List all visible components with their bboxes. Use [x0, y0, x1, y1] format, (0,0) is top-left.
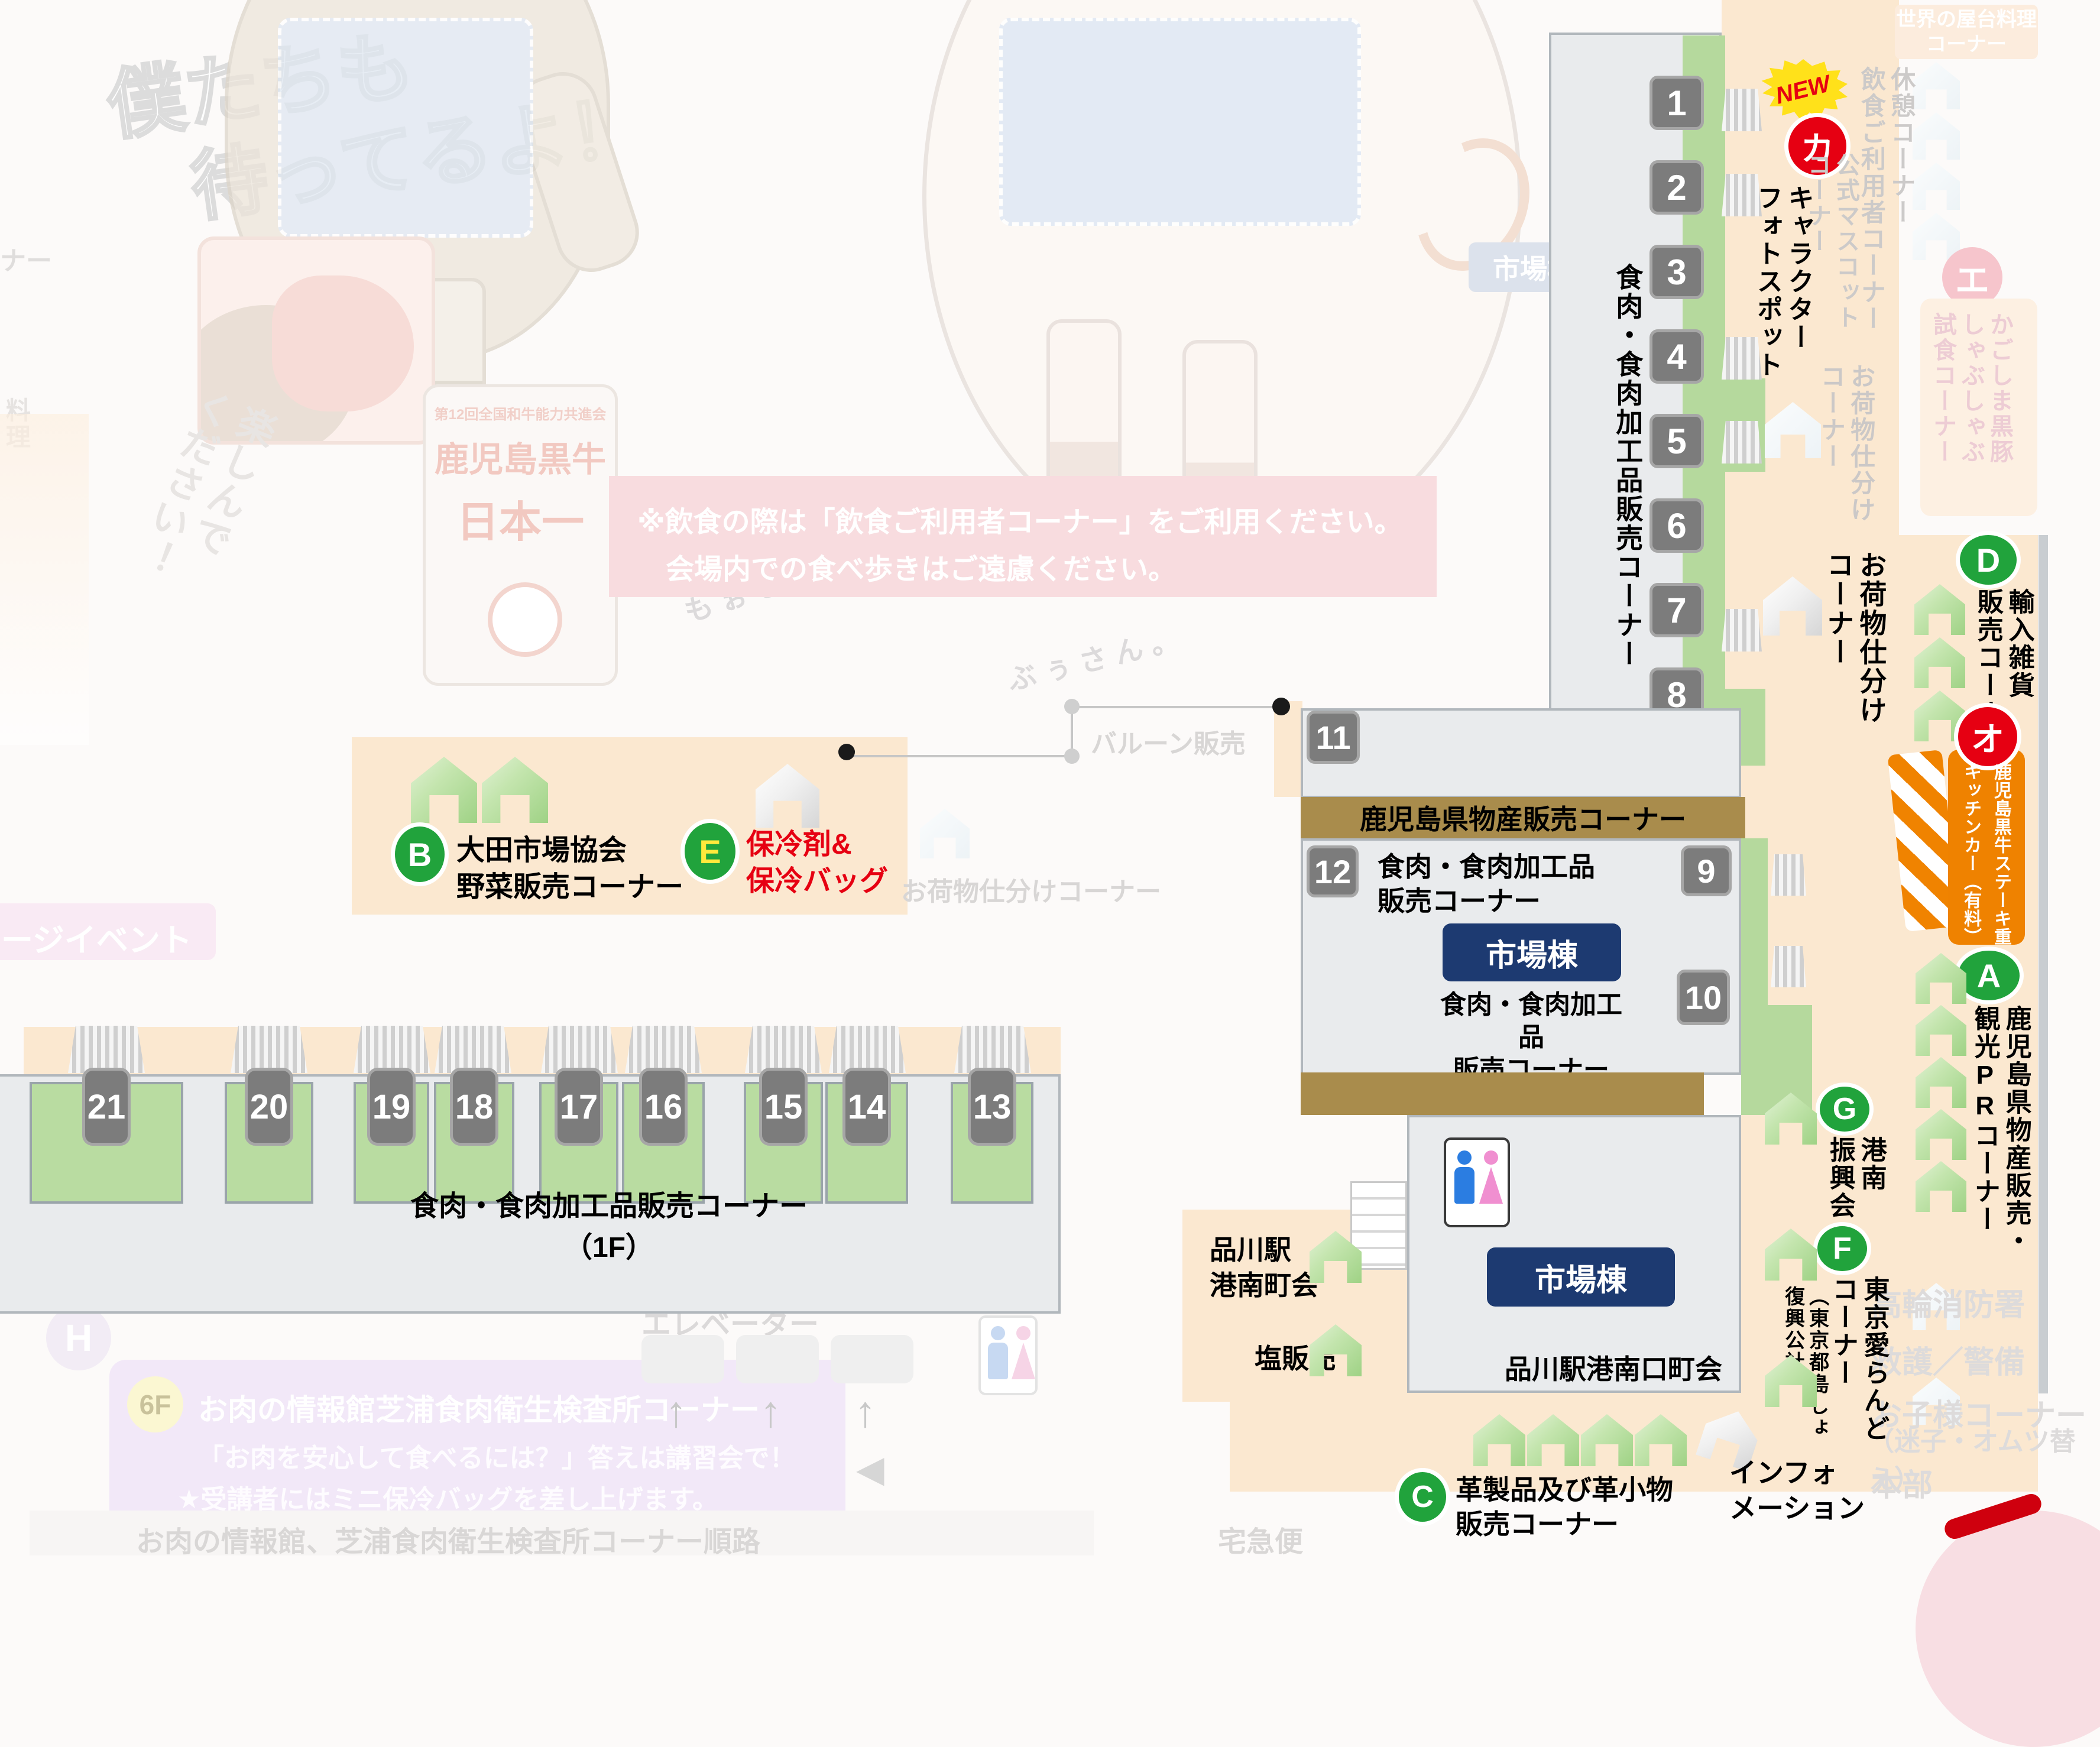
booth-number-4: 4 [1649, 329, 1704, 384]
meat-sales-label-1: 食肉・食肉加工品 販売コーナー [1378, 850, 1595, 918]
striped-booth-icon [745, 1026, 822, 1073]
fire-station-label-faded: 高輪消防署 [1871, 1280, 2025, 1324]
booth-number-5: 5 [1649, 414, 1704, 468]
striped-booth-icon [435, 1026, 511, 1073]
connector-dot [1064, 748, 1080, 764]
faded-tent-icon [920, 809, 970, 858]
striped-booth-icon [354, 1026, 430, 1073]
cow-apron [278, 18, 533, 238]
spot-f-letter: F [1833, 1231, 1852, 1266]
elevator-box [736, 1335, 819, 1383]
new-badge-label: NEW [1773, 70, 1833, 109]
notice-line1: ※飲食の際は「飲食ご利用者コーナー」をご利用ください。 [637, 498, 1403, 540]
booth-number-18: 18 [450, 1068, 498, 1146]
booth-number-12: 12 [1307, 845, 1359, 897]
right-divider-line [2039, 535, 2048, 1393]
spot-g-badge: G [1820, 1087, 1869, 1132]
booth-number-16: 16 [639, 1068, 688, 1146]
booth-number-21: 21 [82, 1068, 131, 1146]
floor6-line1: 「お肉を安心して食べるには？」答えは講習会で！ [198, 1437, 796, 1474]
spot-e-label: 保冷剤& 保冷バッグ [746, 826, 888, 900]
floor6-badge-label: 6F [140, 1389, 171, 1421]
up-arrow-icon: ↑ [665, 1386, 687, 1437]
floor6-badge: 6F [127, 1376, 183, 1432]
notice-line2: 会場内での食べ歩きはご遠慮ください。 [666, 546, 1177, 587]
up-arrow-icon: ↑ [854, 1386, 876, 1437]
booth-number-11: 11 [1307, 711, 1360, 764]
balloon-peach-sliver [1274, 701, 1302, 797]
spot-c-letter: C [1411, 1479, 1434, 1515]
kagoshima-products-bar: 鹿児島県物産販売コーナー [1301, 797, 1745, 838]
spot-o-label: 鹿児島黒牛ステーキ重 キッチンカー（有料） [1956, 763, 2016, 940]
shinagawa-chokai-label: 品川駅 港南町会 [1210, 1233, 1318, 1304]
booth-number-7: 7 [1649, 583, 1704, 637]
booth-number-17: 17 [555, 1068, 603, 1146]
stage-event-box: ージイベント [0, 903, 216, 960]
rest-eatin-labels-faded: 休憩コーナー 飲食ご利用者コーナー [1856, 66, 1916, 409]
booth-number-14: 14 [842, 1068, 891, 1146]
hq-label-faded: 本部 [1871, 1460, 1933, 1505]
toilet-icon [1444, 1137, 1510, 1227]
up-arrow-icon: ↑ [760, 1386, 782, 1437]
spot-b-label: 大田市場協会 野菜販売コーナー [456, 832, 683, 906]
pig-apron [999, 18, 1361, 226]
faded-tent-icon [1913, 62, 1960, 109]
spot-a-label: 鹿児島県物産販売・ 観光PRコーナー [1969, 1005, 2031, 1271]
market-building-label-1: 市場棟 [1486, 931, 1578, 975]
connector-dot [1064, 699, 1080, 714]
mascot-name-bu: ぶぅさん。 [1003, 614, 1191, 699]
left-cut-text-1: ナー [0, 239, 52, 277]
badge-name-text: 鹿児島黒牛 [426, 432, 615, 481]
connector-dot [838, 744, 855, 760]
minamiguchi-chokai-label: 品川駅港南口町会 [1505, 1348, 1722, 1387]
enjoy-message: 楽しんで ください！ [110, 382, 283, 635]
spot-d-letter: D [1976, 541, 2000, 579]
booth-number-13: 13 [968, 1068, 1016, 1146]
spot-e-badge: E [685, 823, 735, 880]
world-food-label: 世界の屋台料理 コーナー [1896, 7, 2037, 57]
spot-a-letter: A [1977, 957, 2001, 995]
striped-booth-icon [68, 1026, 145, 1073]
center-gray-block-11 [1301, 708, 1741, 798]
striped-booth-icon [1722, 89, 1762, 131]
h-spot-letter: H [65, 1316, 92, 1360]
market-building-box-1: 市場棟 [1443, 923, 1621, 981]
spot-o-letter: オ [1971, 713, 2004, 761]
h-spot-badge: H [46, 1305, 111, 1370]
bottom-right-pink-arc [1916, 1511, 2100, 1747]
shabu-label-faded: かごしま黒豚 しゃぶしゃぶ 試食コーナー [1929, 312, 2014, 507]
connector-dot [1272, 698, 1290, 715]
spot-d-badge: D [1960, 535, 2017, 585]
booth-number-3: 3 [1649, 245, 1704, 299]
booth-number-15: 15 [759, 1068, 808, 1146]
booth-number-10: 10 [1677, 970, 1730, 1025]
booth-number-19: 19 [367, 1068, 416, 1146]
badge-rank-text: 日本一 [426, 487, 615, 549]
baggage-sorting-label: お荷物仕分け コーナー [1822, 551, 1887, 746]
elevator-box [641, 1335, 724, 1383]
stage-event-label: ージイベント [1, 914, 192, 961]
striped-booth-icon [829, 1026, 906, 1073]
kuroushi-award-badge: 第12回全国和牛能力共進会 鹿児島黒牛 日本一 [423, 384, 618, 686]
badge-top-text: 第12回全国和牛能力共進会 [426, 403, 615, 423]
spot-a-badge: A [1958, 951, 2020, 1000]
route-label: お肉の情報館、芝浦食肉衛生検査所コーナー順路 [136, 1518, 760, 1560]
center-green-elbow [1741, 1005, 1812, 1115]
world-food-box: 世界の屋台料理 コーナー [1895, 5, 2038, 59]
spot-b-badge: B [395, 826, 445, 882]
left-edge-decoration [0, 414, 89, 745]
market-building-label-2: 市場棟 [1535, 1255, 1627, 1299]
kagoshima-products-label: 鹿児島県物産販売コーナー [1360, 798, 1686, 837]
notice-banner: ※飲食の際は「飲食ご利用者コーナー」をご利用ください。 会場内での食べ歩きはご遠… [609, 476, 1437, 597]
spot-c-badge: C [1399, 1472, 1446, 1522]
booth-number-6: 6 [1649, 498, 1704, 553]
elevator-box [831, 1335, 913, 1383]
market-building-box-2: 市場棟 [1487, 1247, 1675, 1307]
kagoshima-products-bar-2 [1301, 1072, 1704, 1115]
striped-booth-icon [1771, 946, 1806, 987]
balloon-sale-label: バルーン販売 [1091, 722, 1246, 760]
rescue-security-label-faded: 救護／警備 [1871, 1337, 2025, 1382]
striped-booth-icon [231, 1026, 307, 1073]
spot-e-letter: E [699, 832, 721, 871]
spot-b-letter: B [408, 835, 432, 874]
connector-line [1078, 706, 1275, 708]
striped-booth-icon [1722, 609, 1762, 652]
left-arrow-icon: ◀ [856, 1447, 884, 1490]
spot-e-kana-letter: エ [1955, 252, 1989, 302]
striped-booth-icon [625, 1026, 702, 1073]
striped-booth-icon [541, 1026, 618, 1073]
booth-number-1: 1 [1649, 76, 1704, 130]
baggage-sorting-label-faded-h: お荷物仕分けコーナー [901, 870, 1161, 908]
spot-f-badge: F [1817, 1226, 1867, 1271]
connector-line [851, 755, 1071, 757]
bottomrow-area-label: 食肉・食肉加工品販売コーナー（1F） [384, 1182, 834, 1265]
booth-number-9: 9 [1681, 845, 1732, 896]
faded-tent-icon [1913, 213, 1960, 260]
takkyubin-label: 宅急便 [1218, 1518, 1303, 1560]
striped-booth-icon [954, 1026, 1031, 1073]
striped-booth-icon [1771, 854, 1806, 896]
faded-tent-icon [1913, 163, 1960, 210]
booth-number-2: 2 [1649, 160, 1704, 215]
spot-f-label: 東京愛らんど コーナー [1827, 1276, 1890, 1465]
gi-mark-icon [488, 582, 562, 657]
booth-number-20: 20 [245, 1068, 293, 1146]
corridor-area-label: 食肉・食肉加工品販売コーナー [1611, 263, 1644, 653]
toilet-icon-faded [978, 1315, 1038, 1395]
official-mascot-label-faded: 公式マスコット コーナー [1803, 153, 1860, 401]
meat-sales-label-2: 食肉・食肉加工品 販売コーナー [1431, 988, 1632, 1086]
spot-c-label: 革製品及び革小物 販売コーナー [1456, 1473, 1673, 1541]
spot-o-badge: オ [1958, 707, 2017, 766]
spot-g-letter: G [1833, 1091, 1856, 1127]
faded-tent-icon [1913, 112, 1960, 160]
information-label: インフォ メーション [1729, 1456, 1865, 1526]
